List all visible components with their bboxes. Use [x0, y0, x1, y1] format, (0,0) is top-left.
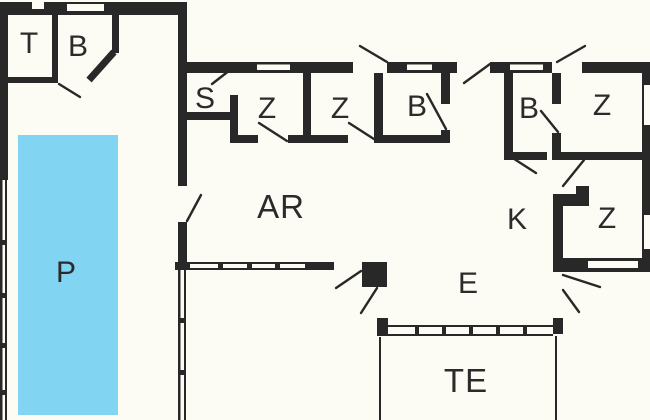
room-label-bedroom-4: Z: [598, 202, 616, 235]
room-label-bedroom-3: Z: [593, 89, 611, 122]
room-label-bathroom-2: B: [519, 92, 539, 125]
room-label-sauna: S: [195, 82, 215, 115]
room-label-toilet: T: [20, 27, 38, 60]
room-label-living-area: AR: [257, 188, 305, 225]
room-label-terrace: TE: [444, 362, 488, 399]
room-label-dining-area: E: [458, 267, 478, 300]
room-label-bath-entry: B: [68, 30, 88, 63]
room-label-bathroom-1: B: [407, 90, 427, 123]
room-label-bedroom-1: Z: [258, 92, 276, 125]
door-swings: [59, 46, 600, 313]
room-label-pool: P: [56, 256, 76, 289]
room-label-bedroom-2: Z: [331, 92, 349, 125]
floor-plan: T B S Z Z B B Z AR K Z E P TE: [0, 0, 650, 420]
room-label-kitchen: K: [507, 203, 527, 236]
